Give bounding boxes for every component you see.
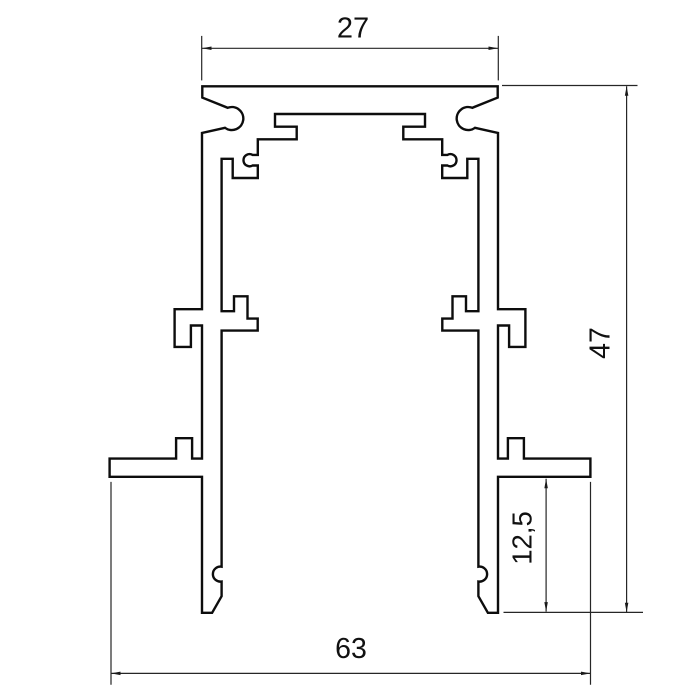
svg-text:63: 63 <box>335 633 367 665</box>
svg-text:47: 47 <box>585 327 617 359</box>
svg-text:27: 27 <box>337 13 369 45</box>
svg-text:12,5: 12,5 <box>507 511 538 565</box>
